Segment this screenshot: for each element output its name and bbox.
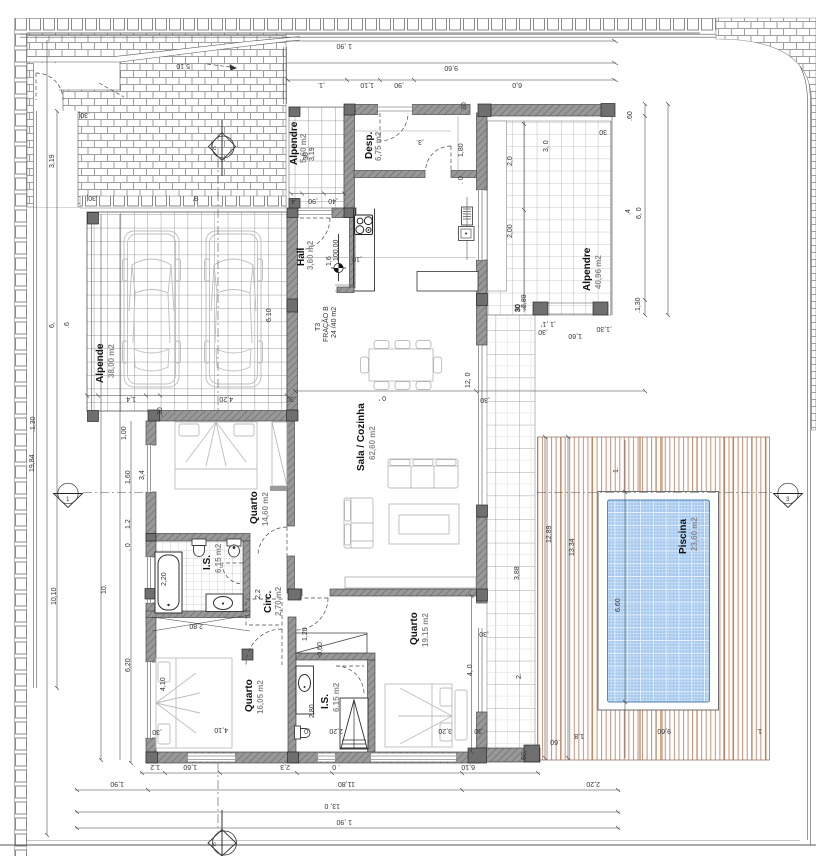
svg-text:9': 9' — [193, 194, 198, 201]
svg-text:T3: T3 — [315, 323, 322, 331]
svg-text:,40: ,40 — [328, 197, 338, 204]
svg-text:6,10: 6,10 — [461, 763, 475, 770]
svg-text:1 ,90: 1 ,90 — [336, 818, 352, 825]
svg-text:6,75 m2: 6,75 m2 — [374, 131, 383, 161]
svg-text:4,10: 4,10 — [160, 677, 167, 691]
svg-text:1 ,90: 1 ,90 — [336, 42, 352, 49]
svg-text:.4: .4 — [625, 209, 632, 215]
svg-text:3, 0: 3, 0 — [543, 140, 550, 152]
svg-text:.60: .60 — [627, 111, 634, 121]
svg-text:23,60 m2: 23,60 m2 — [690, 517, 699, 551]
svg-text:2.: 2. — [516, 673, 523, 679]
svg-text:. 0: . 0 — [332, 763, 340, 770]
svg-text:FRAÇÃO B: FRAÇÃO B — [321, 306, 330, 342]
svg-text:,4: ,4 — [291, 197, 297, 204]
svg-text:. 0: . 0 — [458, 176, 465, 184]
svg-text:6,: 6, — [49, 322, 56, 328]
svg-text:I.S.: I.S. — [202, 555, 213, 570]
svg-text:6,20: 6,20 — [125, 658, 132, 672]
svg-text:1,20: 1,20 — [302, 627, 309, 641]
svg-text:2,20: 2,20 — [161, 572, 168, 586]
svg-text:.30|: .30| — [78, 111, 90, 118]
svg-text:11,80: 11,80 — [338, 780, 355, 787]
svg-text:1,80: 1,80 — [458, 143, 465, 157]
svg-text:1,60: 1,60 — [568, 332, 582, 339]
svg-text:1,10: 1,10 — [360, 81, 374, 88]
svg-text:,10: ,10 — [352, 255, 362, 262]
svg-text:3,19: 3,19 — [49, 154, 56, 168]
svg-text:Quarto: Quarto — [409, 612, 420, 645]
svg-text:1.: 1. — [756, 727, 762, 734]
svg-text:.60,: .60, — [521, 750, 528, 762]
svg-text:30: 30 — [303, 152, 310, 160]
svg-text:,90: ,90 — [308, 197, 318, 204]
svg-text:2,20: 2,20 — [329, 727, 343, 734]
svg-text:.1,30: .1,30 — [30, 416, 37, 432]
svg-text:3,60 m2: 3,60 m2 — [306, 240, 315, 270]
svg-text:I.S.: I.S. — [320, 694, 331, 709]
svg-text:,30: ,30 — [538, 328, 548, 335]
svg-text:4,20: 4,20 — [219, 395, 233, 402]
svg-text:,90: ,90 — [394, 81, 404, 88]
svg-text:6.60: 6.60 — [615, 598, 622, 612]
svg-text:1.2: 1.2 — [150, 763, 160, 770]
svg-text:2,80: 2,80 — [309, 704, 316, 718]
svg-text:2,20: 2,20 — [586, 780, 600, 787]
svg-text:6,15 m2: 6,15 m2 — [332, 682, 341, 712]
svg-text:24 /40 m2: 24 /40 m2 — [331, 307, 338, 338]
svg-text:,3.: ,3. — [416, 138, 424, 145]
svg-text:9,60: 9,60 — [444, 64, 458, 71]
svg-text:13.34: 13.34 — [569, 538, 576, 556]
svg-text:3,88: 3,88 — [514, 566, 521, 580]
svg-text:,30|: ,30| — [86, 194, 98, 201]
svg-text:100.00: 100.00 — [333, 239, 340, 261]
svg-text:1,60: 1,60 — [183, 763, 197, 770]
svg-text:,30: ,30 — [286, 395, 296, 402]
svg-text:Sala / Cozinha: Sala / Cozinha — [356, 403, 367, 471]
svg-text:3,4: 3,4 — [139, 470, 146, 480]
svg-text:1,90: 1,90 — [110, 780, 124, 787]
svg-text:,1 ,1': ,1 ,1' — [541, 320, 556, 327]
svg-text:Quarto: Quarto — [249, 491, 260, 524]
svg-text:,30: ,30 — [157, 407, 164, 417]
svg-text:. 0: . 0 — [125, 543, 132, 551]
svg-text:.60: .60 — [550, 738, 560, 745]
svg-text:19.15 m2: 19.15 m2 — [421, 613, 430, 647]
svg-text:1,00: 1,00 — [121, 426, 128, 440]
svg-text:Alpende: Alpende — [95, 343, 106, 383]
svg-text:3,19: 3,19 — [309, 147, 316, 161]
svg-text:30: 30 — [599, 128, 607, 135]
svg-text:12, 0: 12, 0 — [465, 372, 472, 388]
svg-text:2,2: 2,2 — [255, 589, 262, 599]
svg-text:.1,30: .1,30 — [635, 297, 642, 313]
svg-text:19,84: 19,84 — [29, 454, 36, 472]
svg-text:1,6: 1,6 — [326, 256, 333, 266]
svg-text:Alpendre: Alpendre — [582, 247, 593, 291]
svg-text:6.10: 6.10 — [266, 308, 273, 322]
svg-text:,30: ,30 — [152, 728, 162, 735]
svg-text:6, 0: 6, 0 — [636, 207, 643, 219]
svg-text:14,60 m2: 14,60 m2 — [261, 492, 270, 526]
svg-text:,1,30: ,1,30 — [596, 325, 612, 332]
svg-text:40,96 m2: 40,96 m2 — [594, 255, 603, 289]
svg-text:1,4: 1,4 — [126, 395, 136, 402]
svg-text:-0,60: -0,60 — [317, 642, 324, 658]
svg-text:12.89: 12.89 — [546, 525, 553, 543]
svg-text:38,00 m2: 38,00 m2 — [107, 344, 116, 378]
svg-text:10.: 10. — [101, 584, 108, 594]
svg-text:6,0: 6,0 — [512, 81, 522, 88]
svg-text:Piscina: Piscina — [678, 519, 689, 554]
svg-text:,1.: ,1. — [317, 81, 325, 88]
svg-text:2,00: 2,00 — [507, 224, 514, 238]
svg-text:4,10: 4,10 — [214, 726, 228, 733]
svg-text:0 ': 0 ' — [379, 394, 386, 401]
svg-text:16,05 m2: 16,05 m2 — [256, 680, 265, 714]
svg-text:9,60: 9,60 — [657, 727, 671, 734]
svg-text:1.: 1. — [613, 467, 620, 473]
svg-text:Quarto: Quarto — [244, 679, 255, 712]
svg-text:2,89: 2,89 — [521, 294, 528, 308]
svg-text:62,60 m2: 62,60 m2 — [368, 426, 377, 460]
svg-text:,30: ,30 — [479, 630, 489, 637]
svg-text:1.2: 1.2 — [125, 519, 132, 529]
svg-text:5,10: 5,10 — [176, 62, 190, 69]
svg-text:6,15 m2: 6,15 m2 — [214, 543, 223, 573]
svg-text:1,60: 1,60 — [125, 470, 132, 484]
svg-text:,30: ,30 — [480, 396, 490, 403]
svg-text:.6: .6 — [64, 322, 71, 328]
svg-text:2,3: 2,3 — [280, 763, 290, 770]
svg-text:30: 30 — [461, 102, 468, 110]
svg-text:,30: ,30 — [474, 727, 484, 734]
svg-text:13, 0: 13, 0 — [324, 802, 340, 809]
svg-text:3,20: 3,20 — [438, 727, 452, 734]
svg-text:Circ.: Circ. — [263, 591, 274, 613]
svg-text:1,8: 1,8 — [574, 732, 584, 739]
svg-text:4, 0: 4, 0 — [467, 664, 474, 676]
svg-text:10,10: 10,10 — [51, 587, 58, 605]
svg-text:,0: ,0 — [304, 727, 310, 734]
svg-text:2,0: 2,0 — [507, 156, 514, 166]
